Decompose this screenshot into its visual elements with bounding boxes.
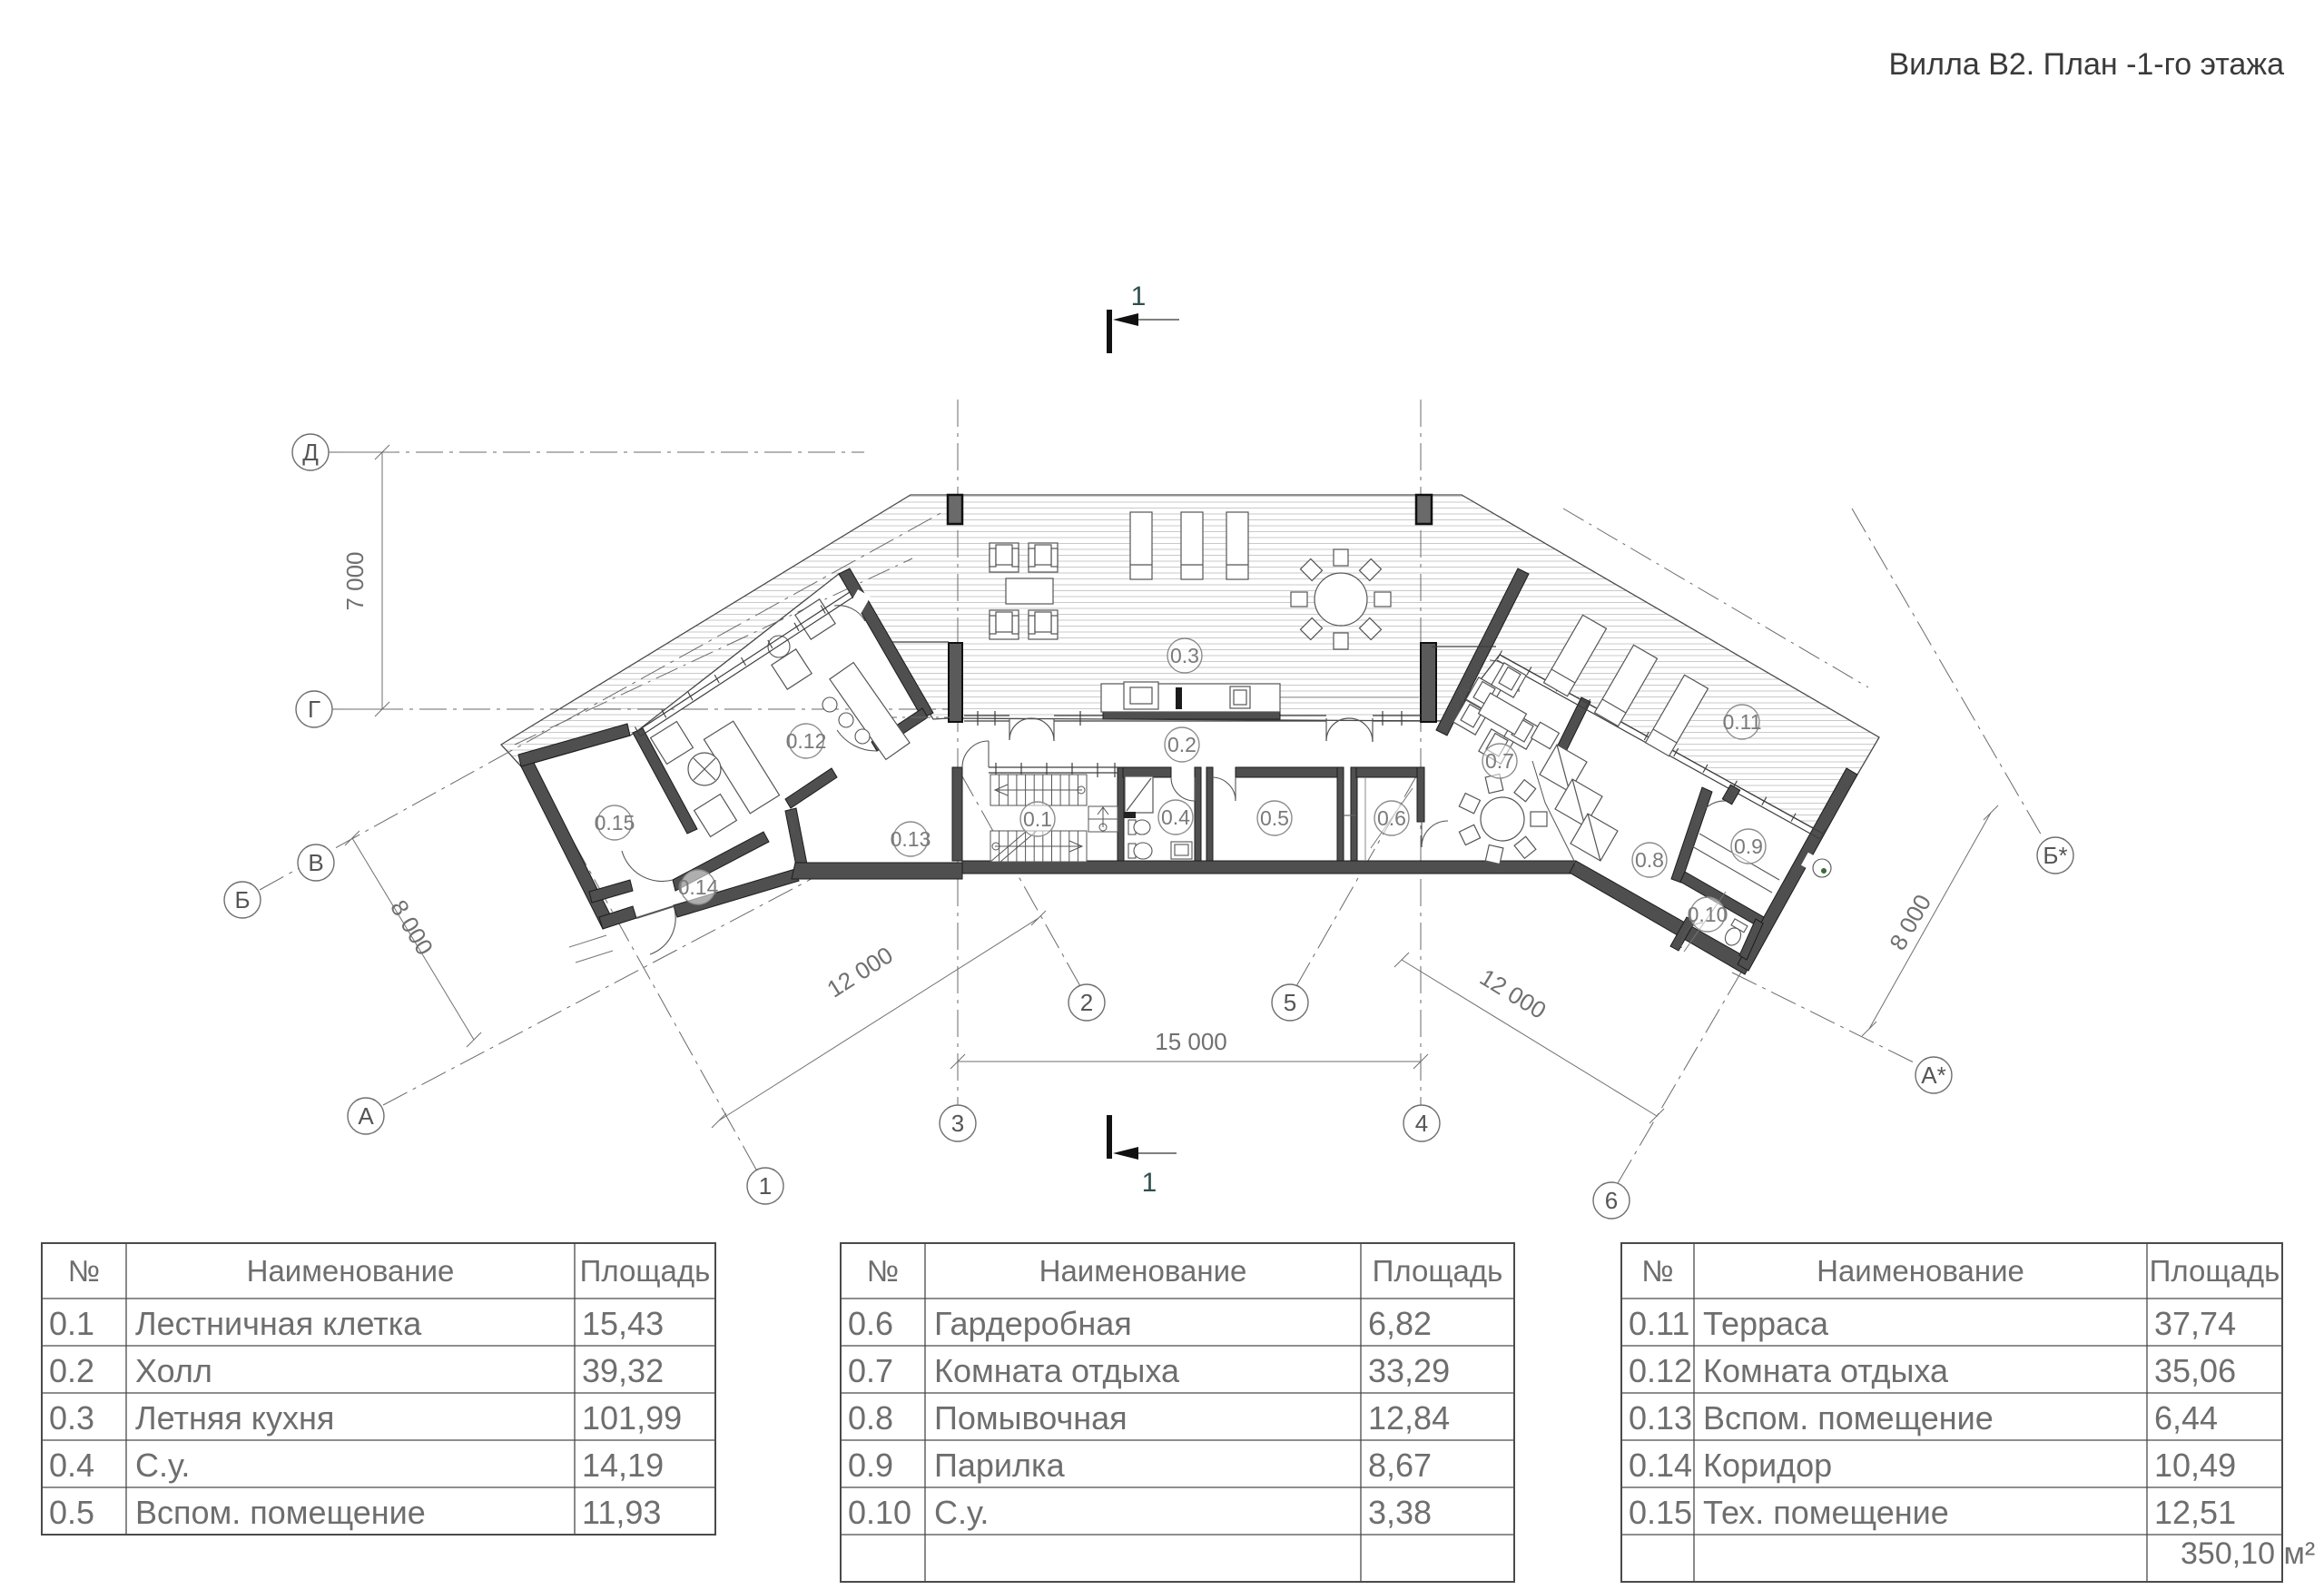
svg-text:С.у.: С.у.: [934, 1494, 989, 1531]
svg-text:0.7: 0.7: [1485, 749, 1514, 773]
svg-text:0.13: 0.13: [1629, 1399, 1692, 1437]
svg-text:37,74: 37,74: [2154, 1305, 2236, 1342]
svg-text:Площадь: Площадь: [2150, 1254, 2280, 1288]
svg-text:101,99: 101,99: [582, 1399, 682, 1437]
svg-text:0.6: 0.6: [1377, 806, 1406, 830]
svg-text:№: №: [867, 1254, 899, 1288]
svg-text:Вилла В2. План -1-го этажа: Вилла В2. План -1-го этажа: [1888, 47, 2284, 82]
svg-text:0.5: 0.5: [49, 1494, 94, 1531]
svg-text:Терраса: Терраса: [1703, 1305, 1829, 1342]
svg-text:С.у.: С.у.: [135, 1447, 190, 1484]
svg-text:Площадь: Площадь: [580, 1254, 711, 1288]
svg-text:0.2: 0.2: [49, 1352, 94, 1389]
svg-text:Холл: Холл: [135, 1352, 212, 1389]
svg-text:Наименование: Наименование: [247, 1254, 455, 1288]
svg-text:0.3: 0.3: [1170, 644, 1199, 667]
svg-text:0.2: 0.2: [1167, 733, 1196, 756]
svg-text:1: 1: [1131, 281, 1147, 311]
svg-text:12,51: 12,51: [2154, 1494, 2236, 1531]
svg-text:2: 2: [1080, 989, 1093, 1016]
svg-text:11,93: 11,93: [582, 1494, 661, 1531]
svg-text:0.15: 0.15: [595, 811, 635, 835]
svg-text:А*: А*: [1921, 1062, 1945, 1089]
svg-text:Гардеробная: Гардеробная: [934, 1305, 1132, 1342]
svg-text:0.12: 0.12: [1629, 1352, 1692, 1389]
svg-text:0.7: 0.7: [848, 1352, 893, 1389]
svg-text:1: 1: [759, 1172, 772, 1200]
svg-text:33,29: 33,29: [1368, 1352, 1450, 1389]
svg-text:0.1: 0.1: [49, 1305, 94, 1342]
svg-text:Вспом. помещение: Вспом. помещение: [1703, 1399, 1994, 1437]
svg-text:0.4: 0.4: [49, 1447, 94, 1484]
svg-text:Парилка: Парилка: [934, 1447, 1066, 1484]
svg-text:0.13: 0.13: [891, 827, 931, 851]
svg-text:Помывочная: Помывочная: [934, 1399, 1128, 1437]
svg-text:14,19: 14,19: [582, 1447, 664, 1484]
svg-text:0.6: 0.6: [848, 1305, 893, 1342]
svg-text:0.12: 0.12: [786, 729, 827, 753]
svg-text:0.8: 0.8: [1635, 848, 1664, 872]
svg-text:0.5: 0.5: [1260, 806, 1289, 830]
svg-text:0.3: 0.3: [49, 1399, 94, 1437]
svg-text:0.10: 0.10: [848, 1494, 911, 1531]
svg-text:6,82: 6,82: [1368, 1305, 1432, 1342]
svg-text:Б: Б: [234, 886, 250, 914]
svg-text:Лестничная клетка: Лестничная клетка: [135, 1305, 422, 1342]
svg-text:Вспом. помещение: Вспом. помещение: [135, 1494, 426, 1531]
svg-text:6: 6: [1605, 1187, 1618, 1214]
svg-text:0.10: 0.10: [1688, 903, 1728, 926]
svg-text:15 000: 15 000: [1155, 1028, 1227, 1055]
svg-text:0.15: 0.15: [1629, 1494, 1692, 1531]
svg-text:35,06: 35,06: [2154, 1352, 2236, 1389]
svg-text:А: А: [358, 1102, 374, 1130]
svg-text:3: 3: [951, 1110, 964, 1137]
svg-text:8,67: 8,67: [1368, 1447, 1432, 1484]
svg-text:Наименование: Наименование: [1039, 1254, 1247, 1288]
svg-text:Тех. помещение: Тех. помещение: [1703, 1494, 1949, 1531]
svg-text:Б*: Б*: [2043, 842, 2067, 869]
svg-text:Комната отдыха: Комната отдыха: [934, 1352, 1180, 1389]
svg-text:39,32: 39,32: [582, 1352, 664, 1389]
svg-text:Комната отдыха: Комната отдыха: [1703, 1352, 1949, 1389]
svg-text:3,38: 3,38: [1368, 1494, 1432, 1531]
svg-text:0.8: 0.8: [848, 1399, 893, 1437]
svg-text:10,49: 10,49: [2154, 1447, 2236, 1484]
svg-text:15,43: 15,43: [582, 1305, 664, 1342]
svg-text:350,10 м²: 350,10 м²: [2181, 1536, 2315, 1571]
svg-text:0.1: 0.1: [1023, 807, 1052, 831]
svg-text:Д: Д: [302, 439, 319, 466]
svg-text:№: №: [68, 1254, 100, 1288]
svg-text:4: 4: [1415, 1110, 1428, 1137]
svg-text:0.14: 0.14: [678, 875, 719, 899]
svg-text:5: 5: [1284, 989, 1296, 1016]
svg-text:№: №: [1641, 1254, 1673, 1288]
svg-text:Площадь: Площадь: [1373, 1254, 1503, 1288]
svg-text:0.11: 0.11: [1722, 710, 1761, 734]
svg-text:В: В: [308, 849, 323, 876]
svg-text:6,44: 6,44: [2154, 1399, 2218, 1437]
svg-text:7 000: 7 000: [341, 551, 369, 610]
svg-text:Коридор: Коридор: [1703, 1447, 1832, 1484]
svg-text:0.9: 0.9: [1734, 835, 1763, 858]
svg-text:Наименование: Наименование: [1817, 1254, 2024, 1288]
svg-text:Летняя кухня: Летняя кухня: [135, 1399, 334, 1437]
svg-text:1: 1: [1142, 1168, 1157, 1198]
svg-text:12,84: 12,84: [1368, 1399, 1450, 1437]
svg-text:0.9: 0.9: [848, 1447, 893, 1484]
svg-text:0.11: 0.11: [1629, 1305, 1689, 1342]
svg-text:0.14: 0.14: [1629, 1447, 1692, 1484]
svg-text:Г: Г: [308, 696, 320, 723]
svg-text:0.4: 0.4: [1161, 805, 1190, 829]
